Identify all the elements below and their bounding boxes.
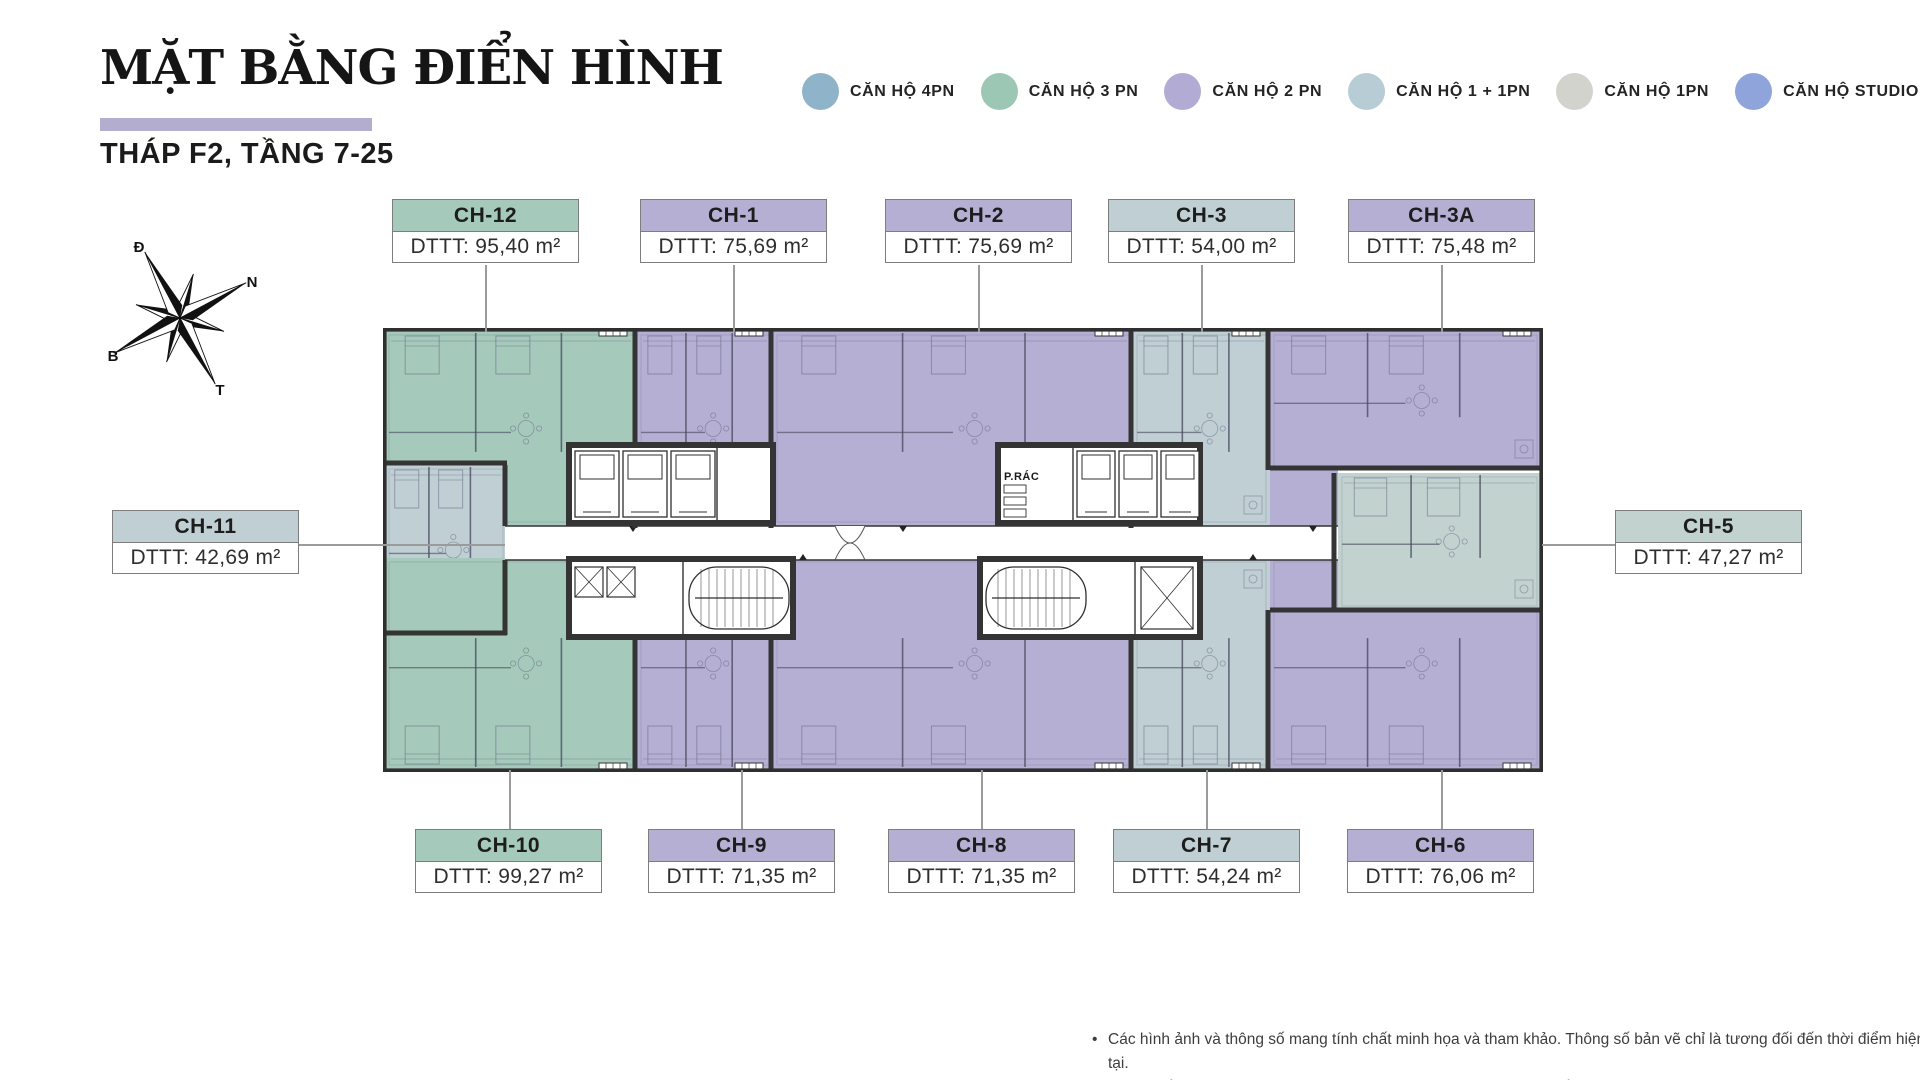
legend-label: CĂN HỘ 3 PN [1029, 83, 1139, 101]
stair-core [569, 559, 793, 637]
legend-item-c-n-h-4pn: CĂN HỘ 4PN [802, 73, 955, 110]
unit-name: CH-9 [648, 829, 835, 862]
unit-area: DTTT: 75,69 m² [640, 232, 827, 263]
unit-label-ch-3a[interactable]: CH-3ADTTT: 75,48 m² [1348, 199, 1535, 263]
legend-label: CĂN HỘ STUDIO [1783, 83, 1919, 101]
label-connector [1206, 770, 1208, 829]
unit-label-ch-5[interactable]: CH-5DTTT: 47,27 m² [1615, 510, 1802, 574]
floor-plan-page: MẶT BẰNG ĐIỂN HÌNH THÁP F2, TẦNG 7-25 CĂ… [0, 0, 1920, 1080]
label-connector [733, 265, 735, 332]
elevator-core: P.RÁC [998, 445, 1200, 523]
compass-direction-label: N [247, 274, 258, 291]
legend-label: CĂN HỘ 1PN [1604, 83, 1709, 101]
unit-label-ch-2[interactable]: CH-2DTTT: 75,69 m² [885, 199, 1072, 263]
unit-label-ch-3[interactable]: CH-3DTTT: 54,00 m² [1108, 199, 1295, 263]
compass-direction-label: B [108, 348, 119, 365]
unit-name: CH-1 [640, 199, 827, 232]
title-underline [100, 118, 372, 131]
compass-direction-label: Đ [134, 239, 145, 256]
bullet: • [1092, 1028, 1108, 1076]
label-connector [509, 770, 511, 829]
unit-area: DTTT: 42,69 m² [112, 543, 299, 574]
unit-label-ch-11[interactable]: CH-11DTTT: 42,69 m² [112, 510, 299, 574]
unit-name: CH-6 [1347, 829, 1534, 862]
legend-item-c-n-h-3-pn: CĂN HỘ 3 PN [981, 73, 1139, 110]
unit-name: CH-11 [112, 510, 299, 543]
unit-label-ch-7[interactable]: CH-7DTTT: 54,24 m² [1113, 829, 1300, 893]
floor-plan-drawing: P.RÁC [383, 328, 1543, 772]
unit-label-ch-8[interactable]: CH-8DTTT: 71,35 m² [888, 829, 1075, 893]
legend-item-c-n-h-1-1pn: CĂN HỘ 1 + 1PN [1348, 73, 1530, 110]
unit-label-ch-1[interactable]: CH-1DTTT: 75,69 m² [640, 199, 827, 263]
label-connector [1201, 265, 1203, 332]
legend-item-c-n-h-2-pn: CĂN HỘ 2 PN [1164, 73, 1322, 110]
unit-name: CH-10 [415, 829, 602, 862]
legend: CĂN HỘ 4PNCĂN HỘ 3 PNCĂN HỘ 2 PNCĂN HỘ 1… [802, 73, 1919, 110]
label-connector [741, 770, 743, 829]
compass-direction-label: T [215, 382, 224, 399]
unit-area: DTTT: 71,35 m² [648, 862, 835, 893]
legend-swatch-icon [981, 73, 1018, 110]
unit-label-ch-6[interactable]: CH-6DTTT: 76,06 m² [1347, 829, 1534, 893]
unit-area: DTTT: 95,40 m² [392, 232, 579, 263]
unit-region-ch-5 [1338, 473, 1541, 610]
legend-label: CĂN HỘ 4PN [850, 83, 955, 101]
legend-item-c-n-h-1pn: CĂN HỘ 1PN [1556, 73, 1709, 110]
unit-area: DTTT: 54,24 m² [1113, 862, 1300, 893]
unit-name: CH-8 [888, 829, 1075, 862]
unit-name: CH-2 [885, 199, 1072, 232]
unit-name: CH-3A [1348, 199, 1535, 232]
disclaimer: • Các hình ảnh và thông số mang tính chấ… [1092, 1028, 1920, 1080]
trash-room-label: P.RÁC [1004, 470, 1039, 483]
disclaimer-text-2: Thông số chính thức của từng căn được qu… [1108, 1076, 1869, 1080]
unit-area: DTTT: 54,00 m² [1108, 232, 1295, 263]
label-connector [1441, 770, 1443, 829]
unit-area: DTTT: 75,48 m² [1348, 232, 1535, 263]
legend-swatch-icon [802, 73, 839, 110]
label-connector [981, 770, 983, 829]
corridor [505, 526, 1338, 560]
legend-swatch-icon [1735, 73, 1772, 110]
disclaimer-line-2: Thông số chính thức của từng căn được qu… [1092, 1076, 1920, 1080]
label-connector [485, 265, 487, 332]
unit-name: CH-5 [1615, 510, 1802, 543]
stair-core [980, 559, 1200, 637]
unit-label-ch-9[interactable]: CH-9DTTT: 71,35 m² [648, 829, 835, 893]
unit-name: CH-12 [392, 199, 579, 232]
label-connector [1441, 265, 1443, 332]
unit-area: DTTT: 99,27 m² [415, 862, 602, 893]
label-connector [298, 544, 505, 546]
legend-item-c-n-h-studio: CĂN HỘ STUDIO [1735, 73, 1919, 110]
label-connector [1542, 544, 1616, 546]
unit-name: CH-7 [1113, 829, 1300, 862]
disclaimer-line-1: • Các hình ảnh và thông số mang tính chấ… [1092, 1028, 1920, 1076]
legend-swatch-icon [1164, 73, 1201, 110]
disclaimer-text-1: Các hình ảnh và thông số mang tính chất … [1108, 1028, 1920, 1076]
legend-swatch-icon [1348, 73, 1385, 110]
legend-swatch-icon [1556, 73, 1593, 110]
page-title: MẶT BẰNG ĐIỂN HÌNH [100, 40, 723, 96]
label-connector [978, 265, 980, 332]
unit-name: CH-3 [1108, 199, 1295, 232]
legend-label: CĂN HỘ 2 PN [1212, 83, 1322, 101]
unit-label-ch-10[interactable]: CH-10DTTT: 99,27 m² [415, 829, 602, 893]
tower-floor-subtitle: THÁP F2, TẦNG 7-25 [100, 138, 394, 171]
unit-area: DTTT: 47,27 m² [1615, 543, 1802, 574]
elevator-core [569, 445, 773, 523]
unit-area: DTTT: 75,69 m² [885, 232, 1072, 263]
compass-star [90, 228, 270, 413]
unit-label-ch-12[interactable]: CH-12DTTT: 95,40 m² [392, 199, 579, 263]
unit-area: DTTT: 76,06 m² [1347, 862, 1534, 893]
unit-area: DTTT: 71,35 m² [888, 862, 1075, 893]
compass-rose-icon: ĐNBT [90, 228, 270, 413]
legend-label: CĂN HỘ 1 + 1PN [1396, 83, 1530, 101]
